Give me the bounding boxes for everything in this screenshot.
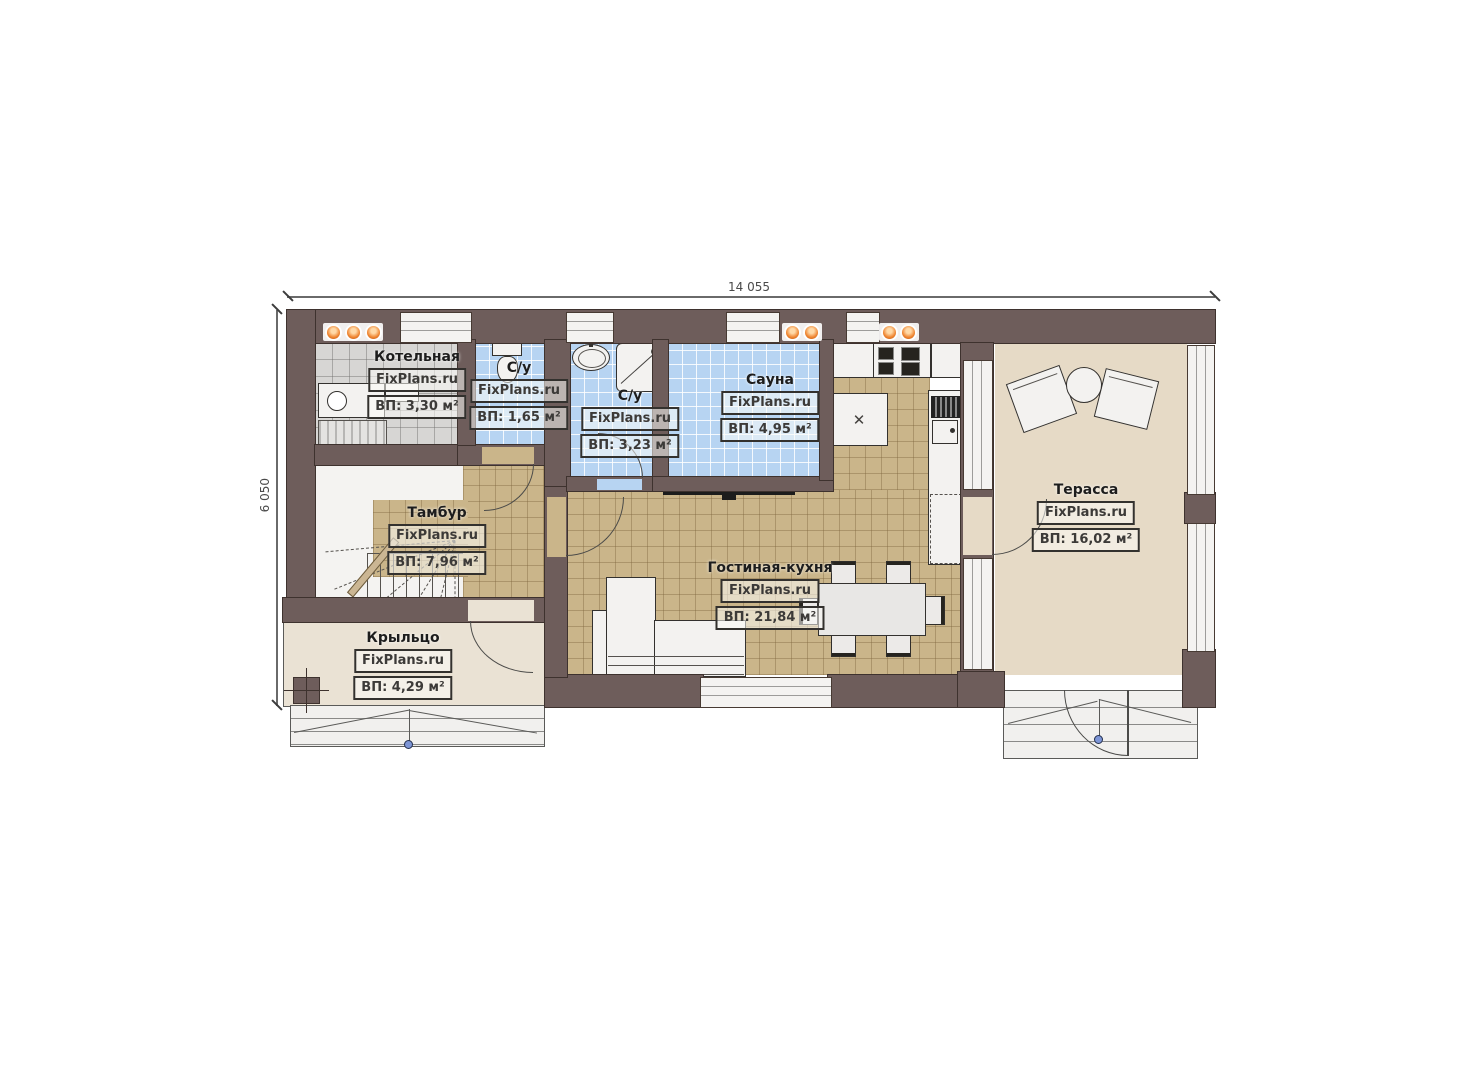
boiler-grate	[318, 420, 387, 447]
dimension-line-top	[287, 296, 1215, 298]
brand-watermark: FixPlans.ru	[721, 391, 819, 415]
kitchen-counter-right	[931, 343, 962, 378]
brand-watermark: FixPlans.ru	[581, 407, 679, 431]
dining-chair-end	[925, 596, 945, 625]
porch-step-diagonal	[294, 710, 409, 733]
stove-burner	[901, 362, 920, 376]
door-opening-porch	[468, 600, 534, 621]
room-name: Сауна	[746, 372, 794, 388]
porch-steps	[290, 705, 545, 747]
toilet-icon	[492, 343, 522, 356]
tv-mount	[722, 495, 736, 500]
room-name: Крыльцо	[366, 630, 439, 646]
brand-watermark: FixPlans.ru	[1037, 501, 1135, 525]
kitchen-counter-left	[833, 343, 874, 378]
wall-terrace-bottom-left	[958, 672, 1004, 707]
brand-watermark: FixPlans.ru	[470, 379, 568, 403]
wall-terrace-right-pier	[1185, 493, 1215, 523]
room-label-terrace: Терасса FixPlans.ru ВП: 16,02 м²	[1032, 482, 1140, 552]
room-label-porch: Крыльцо FixPlans.ru ВП: 4,29 м²	[353, 630, 452, 700]
porch-step-node	[404, 740, 413, 749]
window-terrace-right	[1187, 345, 1215, 495]
radiator-icon	[327, 326, 340, 339]
wall-bottom-left	[545, 675, 703, 707]
brand-watermark: FixPlans.ru	[368, 368, 466, 392]
porch-step-stem	[409, 709, 410, 743]
dining-chair	[886, 561, 911, 584]
terrace-step-node	[1094, 735, 1103, 744]
room-name: С/у	[507, 360, 532, 376]
radiator-icon	[805, 326, 818, 339]
room-label-sauna: Сауна FixPlans.ru ВП: 4,95 м²	[720, 372, 819, 442]
door-opening-shower	[597, 479, 642, 490]
dining-chair	[886, 634, 911, 657]
room-name: Котельная	[374, 349, 460, 365]
room-label-living-kitchen: Гостиная-кухня FixPlans.ru ВП: 21,84 м²	[707, 560, 832, 630]
wall-sauna-bottom	[653, 477, 833, 491]
wall-terrace-bottom-right	[1183, 650, 1215, 707]
wall-sauna-right	[820, 340, 833, 480]
room-area: ВП: 1,65 м²	[469, 406, 568, 430]
dimension-line-left	[276, 310, 278, 706]
room-label-vestibule: Тамбур FixPlans.ru ВП: 7,96 м²	[387, 505, 486, 575]
window-living-terrace	[963, 558, 993, 670]
dish-drainer-icon	[931, 396, 961, 418]
terrace-round-table	[1066, 367, 1102, 403]
radiator-icon	[786, 326, 799, 339]
room-name: Тамбур	[407, 505, 466, 521]
brand-watermark: FixPlans.ru	[388, 524, 486, 548]
room-area: ВП: 16,02 м²	[1032, 528, 1140, 552]
kitchen-tap-icon	[950, 428, 955, 433]
brand-watermark: FixPlans.ru	[721, 579, 819, 603]
dimension-label-top: 14 055	[728, 280, 770, 294]
stove-burner	[878, 347, 894, 360]
dining-chair	[831, 634, 856, 657]
room-label-wc: С/у FixPlans.ru ВП: 1,65 м²	[469, 360, 568, 430]
sink-inner	[578, 349, 606, 368]
dimension-label-left: 6 050	[258, 478, 272, 512]
window-living-terrace	[963, 360, 993, 490]
dining-table	[818, 583, 926, 636]
door-opening-terrace	[963, 497, 992, 555]
dining-chair	[831, 561, 856, 584]
room-name: Терасса	[1054, 482, 1119, 498]
stove-burner	[878, 362, 894, 375]
radiator-icon	[902, 326, 915, 339]
radiator-icon	[347, 326, 360, 339]
room-area: ВП: 7,96 м²	[387, 551, 486, 575]
washing-machine-icon	[327, 391, 347, 411]
porch-column-axis-h	[284, 690, 329, 691]
radiator-icon	[367, 326, 380, 339]
window	[566, 312, 614, 343]
floor-plan-canvas: ✕	[0, 0, 1473, 1080]
armchair-back	[1109, 376, 1153, 388]
room-label-boiler: Котельная FixPlans.ru ВП: 3,30 м²	[367, 349, 466, 419]
room-area: ВП: 21,84 м²	[716, 606, 824, 630]
window	[846, 312, 880, 343]
window-terrace-right	[1187, 523, 1215, 652]
room-area: ВП: 4,95 м²	[720, 418, 819, 442]
kitchen-cabinet: ✕	[830, 393, 888, 446]
door-opening-wc	[482, 447, 534, 464]
wall-bottom-right	[828, 675, 965, 707]
room-name: Гостиная-кухня	[707, 560, 832, 576]
room-label-shower: С/у FixPlans.ru ВП: 3,23 м²	[580, 388, 679, 458]
wall-left	[287, 310, 315, 622]
window	[400, 312, 472, 343]
wall-boiler-stairs	[315, 445, 463, 465]
room-area: ВП: 4,29 м²	[353, 676, 452, 700]
room-area: ВП: 3,30 м²	[367, 395, 466, 419]
room-area: ВП: 3,23 м²	[580, 434, 679, 458]
door-opening-vestibule-living	[547, 497, 566, 557]
brand-watermark: FixPlans.ru	[354, 649, 452, 673]
window	[726, 312, 780, 343]
radiator-icon	[883, 326, 896, 339]
kitchen-cabinet-dashed	[930, 494, 962, 564]
stove-burner	[901, 347, 920, 361]
window-living-south	[700, 677, 832, 708]
room-name: С/у	[618, 388, 643, 404]
door-leaf-terrace-gate	[1127, 690, 1129, 756]
sofa-cushion-lines	[608, 648, 744, 676]
porch-step-diagonal	[409, 710, 537, 734]
